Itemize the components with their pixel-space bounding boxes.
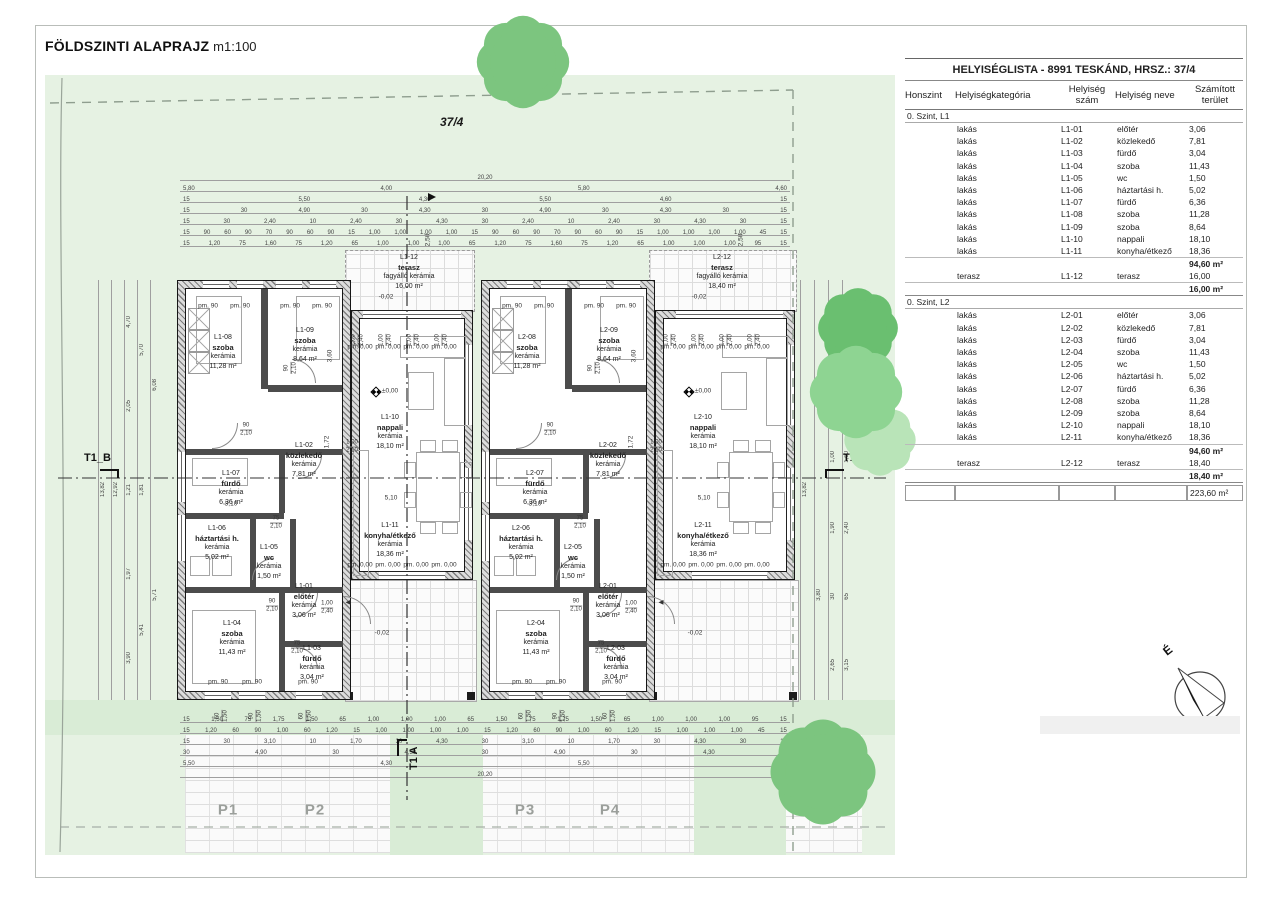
furniture bbox=[444, 358, 466, 426]
table-cell: előtér bbox=[1115, 123, 1187, 135]
table-cell: wc bbox=[1115, 172, 1187, 184]
table-cell: 11,43 bbox=[1187, 160, 1243, 172]
table-row: lakásL1-06háztartási h.5,02 bbox=[905, 184, 1243, 196]
table-cell bbox=[905, 309, 955, 321]
annotation: -0,02 bbox=[688, 630, 703, 637]
dim-text: 75 bbox=[524, 241, 533, 247]
dim-text: 1,60 bbox=[264, 241, 278, 247]
dim-text: 2,10 bbox=[544, 430, 556, 438]
dim-text: 1,00 bbox=[830, 451, 836, 463]
annotation: pm. 0,00 bbox=[660, 562, 685, 569]
dim-text: 2,40 bbox=[844, 522, 850, 534]
table-cell bbox=[905, 346, 955, 358]
dim-bottom: 151,50751,751,50651,001,001,00651,50751,… bbox=[180, 712, 790, 778]
table-row: lakásL1-01előtér3,06 bbox=[905, 123, 1243, 135]
annotation: ◀ bbox=[659, 598, 664, 606]
table-cell bbox=[955, 258, 1059, 270]
furniture bbox=[496, 610, 560, 684]
dim-pair: 902,10 bbox=[588, 362, 603, 374]
table-cell: közlekedő bbox=[1115, 322, 1187, 334]
col-kategoria: Helyiségkategória bbox=[955, 90, 1059, 101]
dim-pair: 752,10 bbox=[291, 641, 303, 656]
furniture bbox=[729, 452, 773, 522]
dim-text: 1,00 bbox=[748, 334, 754, 346]
table-cell bbox=[1115, 283, 1187, 295]
dim-text: 2,40 bbox=[414, 334, 422, 346]
annotation: ±0,00 bbox=[695, 388, 711, 395]
partition bbox=[268, 385, 342, 392]
table-cell bbox=[905, 445, 955, 457]
table-cell: lakás bbox=[955, 309, 1059, 321]
dim-text: 1,97 bbox=[126, 568, 132, 580]
window-icon bbox=[509, 691, 535, 700]
table-cell bbox=[905, 270, 955, 282]
dim-text: 2,65 bbox=[830, 659, 836, 671]
table-cell bbox=[1059, 283, 1115, 295]
table-cell bbox=[905, 135, 955, 147]
dim-pair: 1,002,40 bbox=[321, 601, 333, 616]
dim-column: 13,82 bbox=[800, 280, 808, 700]
furniture bbox=[494, 556, 514, 576]
table-cell bbox=[1115, 485, 1187, 501]
table-row: lakásL2-11konyha/étkező18,36 bbox=[905, 431, 1243, 443]
table-cell: 18,36 bbox=[1187, 431, 1243, 443]
table-cell bbox=[905, 258, 955, 270]
dim-pair: 1,002,40 bbox=[664, 334, 679, 346]
table-cell: 11,28 bbox=[1187, 395, 1243, 407]
dim-pair: 902,10 bbox=[284, 362, 299, 374]
furniture bbox=[721, 372, 747, 410]
table-cell: L2-09 bbox=[1059, 407, 1115, 419]
partition bbox=[261, 289, 268, 389]
dim-text: 1,00 bbox=[407, 241, 421, 247]
dim-text: 75 bbox=[577, 516, 584, 522]
col-honszint: Honszint bbox=[905, 90, 955, 101]
sliding-door-icon bbox=[363, 310, 461, 319]
table-cell bbox=[905, 334, 955, 346]
dim-text: 2,10 bbox=[595, 648, 607, 656]
window-icon bbox=[481, 515, 490, 561]
dim-text: 1,00 bbox=[376, 241, 390, 247]
table-cell bbox=[905, 383, 955, 395]
table-row: lakásL2-04szoba11,43 bbox=[905, 346, 1243, 358]
window-icon bbox=[541, 280, 567, 289]
table-cell: szoba bbox=[1115, 407, 1187, 419]
table-cell bbox=[905, 123, 955, 135]
annotation: pm. 0,00 bbox=[403, 562, 428, 569]
table-cell bbox=[905, 322, 955, 334]
table-cell: 11,28 bbox=[1187, 208, 1243, 220]
dim-text: 3,50 bbox=[816, 379, 822, 391]
furniture bbox=[657, 450, 673, 576]
dim-pair: 902,10 bbox=[570, 599, 582, 614]
table-cell: L1-01 bbox=[1059, 123, 1115, 135]
table-cell bbox=[905, 431, 955, 443]
table-cell: lakás bbox=[955, 196, 1059, 208]
furniture bbox=[717, 492, 729, 508]
annotation: 3,10 bbox=[529, 501, 542, 508]
window-icon bbox=[543, 691, 569, 700]
dim-pair: 1,002,40 bbox=[379, 334, 394, 346]
dim-text: 1,00 bbox=[664, 334, 670, 346]
roomlist-table: HELYISÉGLISTA - 8991 TESKÁND, HRSZ.: 37/… bbox=[905, 58, 1243, 501]
dim-text: 2,10 bbox=[574, 523, 586, 531]
furniture bbox=[353, 450, 369, 576]
table-cell: 18,36 bbox=[1187, 245, 1243, 257]
annotation: pm. 90 bbox=[584, 303, 604, 310]
roomlist-title: HELYISÉGLISTA - 8991 TESKÁND, HRSZ.: 37/… bbox=[905, 58, 1243, 81]
dim-text: 2,40 bbox=[699, 334, 707, 346]
table-cell bbox=[905, 160, 955, 172]
annotation: pm. 0,00 bbox=[375, 562, 400, 569]
table-cell bbox=[955, 445, 1059, 457]
dim-pair: 1,002,40 bbox=[720, 334, 735, 346]
porch-post bbox=[467, 692, 475, 700]
dim-text: 13,82 bbox=[802, 482, 808, 497]
annotation: pm. 90 bbox=[198, 303, 218, 310]
dim-row: 15304,90304,30304,90304,303015 bbox=[180, 203, 790, 214]
dim-text: 2,10 bbox=[240, 430, 252, 438]
annotation: pm. 90 bbox=[312, 303, 332, 310]
table-cell: lakás bbox=[955, 123, 1059, 135]
furniture bbox=[190, 556, 210, 576]
annotation: -0,02 bbox=[375, 630, 390, 637]
table-row: lakásL2-03fürdő3,04 bbox=[905, 334, 1243, 346]
dim-text: 95 bbox=[754, 241, 763, 247]
window-icon bbox=[507, 280, 533, 289]
partition bbox=[490, 587, 647, 593]
dim-text: 1,00 bbox=[351, 334, 357, 346]
table-cell: 18,10 bbox=[1187, 419, 1243, 431]
dim-pair: 1,002,40 bbox=[351, 334, 366, 346]
dim-text: 12,92 bbox=[113, 482, 119, 497]
dim-text: 2,10 bbox=[346, 447, 358, 455]
table-cell: L2-11 bbox=[1059, 431, 1115, 443]
table-cell: L2-02 bbox=[1059, 322, 1115, 334]
window-icon bbox=[177, 452, 186, 502]
table-cell: konyha/étkező bbox=[1115, 431, 1187, 443]
dim-text: 1,00 bbox=[692, 334, 698, 346]
table-row: lakásL2-08szoba11,28 bbox=[905, 395, 1243, 407]
annotation: 1,72 bbox=[628, 436, 635, 449]
table-cell bbox=[905, 358, 955, 370]
furniture bbox=[733, 440, 749, 452]
table-row: 0. Szint, L2 bbox=[905, 296, 1243, 309]
dim-row: 151,20751,60751,20651,001,001,00651,2075… bbox=[180, 236, 790, 247]
table-cell: közlekedő bbox=[1115, 135, 1187, 147]
table-cell: L1-11 bbox=[1059, 245, 1115, 257]
annotation: pm. 90 bbox=[512, 679, 532, 686]
section-marker-bottom: T1 A bbox=[408, 747, 420, 770]
table-cell: L1-06 bbox=[1059, 184, 1115, 196]
table-row: lakásL2-02közlekedő7,81 bbox=[905, 322, 1243, 334]
furniture bbox=[404, 462, 416, 478]
dim-text: 1,20 bbox=[830, 310, 836, 322]
annotation: pm. 90 bbox=[602, 679, 622, 686]
partition bbox=[186, 587, 343, 593]
table-row: lakásL2-06háztartási h.5,02 bbox=[905, 370, 1243, 382]
table-cell bbox=[905, 370, 955, 382]
annotation: pm. 90 bbox=[502, 303, 522, 310]
dim-text: 5,41 bbox=[139, 624, 145, 636]
dim-text: 2,10 bbox=[266, 606, 278, 614]
table-cell: nappali bbox=[1115, 419, 1187, 431]
annotation: pm. 90 bbox=[616, 303, 636, 310]
dim-column: 3,503,80 bbox=[814, 280, 822, 700]
table-cell: 18,40 m² bbox=[1187, 470, 1243, 482]
annotation: pm. 90 bbox=[280, 303, 300, 310]
dim-text: 1,60 bbox=[550, 241, 564, 247]
cabinet-icon bbox=[492, 330, 514, 352]
furniture bbox=[733, 522, 749, 534]
dim-pair: 1,002,10 bbox=[650, 440, 662, 455]
window-icon bbox=[239, 691, 265, 700]
terrace bbox=[345, 250, 475, 312]
dim-text: 2,10 bbox=[291, 648, 303, 656]
table-cell: 94,60 m² bbox=[1187, 258, 1243, 270]
dim-column: 1,204,121,001,90302,65 bbox=[828, 280, 836, 700]
cabinet-icon bbox=[492, 352, 514, 374]
dim-row: 5,504,305,504,60 bbox=[180, 756, 790, 767]
table-cell bbox=[905, 184, 955, 196]
partition bbox=[565, 289, 572, 389]
window-icon bbox=[276, 280, 302, 289]
table-cell: 7,81 bbox=[1187, 322, 1243, 334]
dim-text: 2,40 bbox=[386, 334, 394, 346]
dim-text: 1,20 bbox=[493, 241, 507, 247]
table-cell: 3,04 bbox=[1187, 147, 1243, 159]
table-cell: L2-07 bbox=[1059, 383, 1115, 395]
dim-text: 30 bbox=[830, 593, 836, 600]
furniture bbox=[755, 440, 771, 452]
table-cell: 8,64 bbox=[1187, 221, 1243, 233]
partition bbox=[572, 385, 646, 392]
table-cell: szoba bbox=[1115, 346, 1187, 358]
annotation: -0,02 bbox=[692, 294, 707, 301]
dim-text: 2,10 bbox=[595, 362, 603, 374]
table-cell: L2-12 bbox=[1059, 457, 1115, 469]
parking-label: P4 bbox=[600, 802, 620, 819]
table-row: lakásL1-11konyha/étkező18,36 bbox=[905, 245, 1243, 257]
table-cell bbox=[1115, 470, 1187, 482]
terrace bbox=[649, 250, 797, 312]
dim-row: 15302,40102,40304,30302,40102,40304,3030… bbox=[180, 214, 790, 225]
cabinet-icon bbox=[188, 352, 210, 374]
table-cell: 3,06 bbox=[1187, 309, 1243, 321]
dim-text: 1,20 bbox=[208, 241, 222, 247]
table-cell: 18,10 bbox=[1187, 233, 1243, 245]
dim-text: 1,21 bbox=[126, 484, 132, 496]
table-cell bbox=[905, 233, 955, 245]
table-row: lakásL1-07fürdő6,36 bbox=[905, 196, 1243, 208]
dim-text: 1,00 bbox=[720, 334, 726, 346]
dim-text: 4,70 bbox=[126, 316, 132, 328]
table-cell: 6,36 bbox=[1187, 196, 1243, 208]
table-cell: lakás bbox=[955, 208, 1059, 220]
table-cell: wc bbox=[1115, 358, 1187, 370]
dim-pair: 752,10 bbox=[270, 516, 282, 531]
table-row: lakásL1-04szoba11,43 bbox=[905, 160, 1243, 172]
section-marker-left: T1_B bbox=[84, 452, 111, 464]
annotation: pm. 0,00 bbox=[744, 562, 769, 569]
dim-text: 2,10 bbox=[291, 362, 299, 374]
dim-text: 65 bbox=[844, 593, 850, 600]
dim-column: 6,085,71 bbox=[150, 280, 158, 700]
dim-text: 15 bbox=[182, 241, 191, 247]
table-cell bbox=[905, 485, 955, 501]
table-cell: lakás bbox=[955, 233, 1059, 245]
table-cell: 0. Szint, L1 bbox=[905, 110, 1243, 122]
dim-row: 304,90304,30304,90304,3030 bbox=[180, 745, 790, 756]
plot-number: 37/4 bbox=[440, 115, 463, 129]
sliding-door-icon bbox=[379, 571, 445, 580]
dim-text: 1,00 bbox=[662, 241, 676, 247]
window-icon bbox=[481, 452, 490, 502]
annotation: -0,02 bbox=[379, 294, 394, 301]
section-marker-right: T1_B bbox=[843, 452, 870, 464]
annotation: pm. 0,00 bbox=[431, 562, 456, 569]
table-cell: lakás bbox=[955, 395, 1059, 407]
dim-pair: 1,002,10 bbox=[346, 440, 358, 455]
table-cell: konyha/étkező bbox=[1115, 245, 1187, 257]
dim-text: 1,00 bbox=[435, 334, 441, 346]
dim-column: 5,701,815,41 bbox=[137, 280, 145, 700]
table-row: lakásL2-01előtér3,06 bbox=[905, 309, 1243, 321]
furniture bbox=[212, 556, 232, 576]
table-row: 16,00 m² bbox=[905, 282, 1243, 296]
table-cell bbox=[905, 221, 955, 233]
table-cell: L1-08 bbox=[1059, 208, 1115, 220]
dim-text: 75 bbox=[580, 241, 589, 247]
annotation: ±0,00 bbox=[382, 388, 398, 395]
dim-column: 12,92 bbox=[111, 280, 119, 700]
table-cell: terasz bbox=[1115, 457, 1187, 469]
table-cell: fürdő bbox=[1115, 334, 1187, 346]
table-cell: 1,50 bbox=[1187, 358, 1243, 370]
dim-text: 75 bbox=[294, 241, 303, 247]
table-cell bbox=[905, 395, 955, 407]
partition bbox=[279, 455, 285, 513]
table-row: lakásL2-05wc1,50 bbox=[905, 358, 1243, 370]
dim-right: 13,823,503,801,204,121,001,90302,651,504… bbox=[800, 280, 862, 700]
table-row: 223,60 m² bbox=[905, 485, 1243, 501]
furniture bbox=[496, 458, 552, 486]
dim-column: 13,82 bbox=[98, 280, 106, 700]
furniture bbox=[192, 458, 248, 486]
dim-text: 1,00 bbox=[407, 334, 413, 346]
table-cell bbox=[905, 196, 955, 208]
furniture bbox=[460, 492, 472, 508]
furniture bbox=[192, 610, 256, 684]
table-row: 0. Szint, L1 bbox=[905, 110, 1243, 123]
table-cell bbox=[905, 283, 955, 295]
cabinet-icon bbox=[188, 330, 210, 352]
dim-pair: 902,10 bbox=[266, 599, 278, 614]
dim-text: 1,90 bbox=[830, 522, 836, 534]
dim-column: 1,504,821,002,40653,15 bbox=[842, 280, 850, 700]
furniture bbox=[766, 358, 788, 426]
table-cell: 3,04 bbox=[1187, 334, 1243, 346]
dim-row: 15303,10101,70304,30303,10101,70304,3030… bbox=[180, 734, 790, 745]
dim-text: 1,00 bbox=[437, 241, 451, 247]
dim-text: 2,40 bbox=[358, 334, 366, 346]
table-cell: 3,06 bbox=[1187, 123, 1243, 135]
table-cell bbox=[1059, 485, 1115, 501]
table-row: lakásL1-02közlekedő7,81 bbox=[905, 135, 1243, 147]
annotation: 3,60 bbox=[327, 350, 334, 363]
table-cell bbox=[1115, 445, 1187, 457]
dim-pair: 902,10 bbox=[544, 423, 556, 438]
sliding-door-icon bbox=[676, 310, 783, 319]
dim-text: 1,00 bbox=[346, 440, 358, 446]
dim-row: 20,20 bbox=[180, 767, 790, 778]
table-cell bbox=[1115, 258, 1187, 270]
dim-text: 2,40 bbox=[755, 334, 763, 346]
window-icon bbox=[237, 280, 263, 289]
table-cell: 16,00 bbox=[1187, 270, 1243, 282]
table-cell: lakás bbox=[955, 358, 1059, 370]
table-cell: 5,02 bbox=[1187, 370, 1243, 382]
cabinet-icon bbox=[492, 308, 514, 330]
dim-pair: 1,002,40 bbox=[748, 334, 763, 346]
dim-text: 3,90 bbox=[126, 652, 132, 664]
dim-text: 65 bbox=[636, 241, 645, 247]
table-row: lakásL1-05wc1,50 bbox=[905, 172, 1243, 184]
window-icon bbox=[614, 280, 640, 289]
furniture bbox=[755, 522, 771, 534]
table-cell: szoba bbox=[1115, 208, 1187, 220]
table-cell: fürdő bbox=[1115, 383, 1187, 395]
dim-row: 1590609070906090151,001,001,001,00159060… bbox=[180, 225, 790, 236]
partition bbox=[583, 455, 589, 513]
annotation: pm. 90 bbox=[208, 679, 228, 686]
parking-label: P2 bbox=[305, 802, 325, 819]
table-cell bbox=[905, 208, 955, 220]
porch bbox=[649, 580, 799, 702]
table-cell: terasz bbox=[955, 457, 1059, 469]
dim-text: 5,71 bbox=[152, 589, 158, 601]
table-cell: 16,00 m² bbox=[1187, 283, 1243, 295]
table-cell: fürdő bbox=[1115, 196, 1187, 208]
col-terulet: Számított terület bbox=[1187, 84, 1243, 106]
table-cell bbox=[905, 245, 955, 257]
table-cell: L1-09 bbox=[1059, 221, 1115, 233]
dim-text: 2,40 bbox=[625, 608, 637, 616]
furniture bbox=[773, 462, 785, 478]
table-row: lakásL2-07fürdő6,36 bbox=[905, 383, 1243, 395]
dim-text: 1,20 bbox=[320, 241, 334, 247]
dim-pair: 1,002,40 bbox=[692, 334, 707, 346]
partition bbox=[290, 519, 296, 587]
sliding-door-icon bbox=[692, 571, 767, 580]
dim-text: 13,82 bbox=[100, 482, 106, 497]
furniture bbox=[442, 440, 458, 452]
table-row: 94,60 m² bbox=[905, 444, 1243, 457]
table-cell: lakás bbox=[955, 346, 1059, 358]
table-cell: lakás bbox=[955, 184, 1059, 196]
table-cell: 94,60 m² bbox=[1187, 445, 1243, 457]
table-cell: szoba bbox=[1115, 160, 1187, 172]
table-cell: lakás bbox=[955, 172, 1059, 184]
furniture bbox=[420, 522, 436, 534]
scale-bar bbox=[1040, 716, 1240, 734]
dim-text: 1,50 bbox=[844, 310, 850, 322]
parking-label: P3 bbox=[515, 802, 535, 819]
dim-pair: 902,10 bbox=[240, 423, 252, 438]
table-row: lakásL2-10nappali18,10 bbox=[905, 419, 1243, 431]
dim-text: 5,70 bbox=[139, 344, 145, 356]
roomlist-body: 0. Szint, L1lakásL1-01előtér3,06lakásL1-… bbox=[905, 110, 1243, 501]
